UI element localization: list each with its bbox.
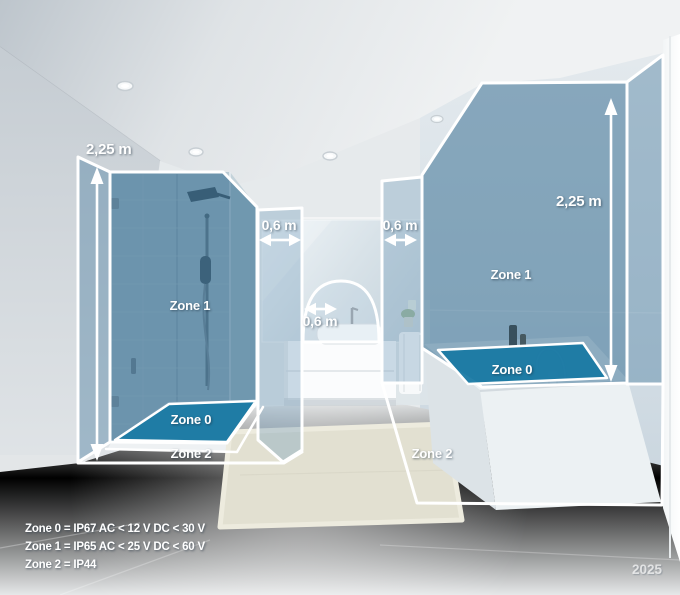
year-watermark: 2025 <box>618 562 662 577</box>
basin-arc-label: 0,6 m <box>297 314 343 329</box>
bath-zone0-label: Zone 0 <box>486 363 538 377</box>
bath-zone1-side-face <box>627 55 663 384</box>
legend-zone0-line: Zone 0 = IP67 AC < 12 V DC < 30 V <box>25 520 205 538</box>
shower-zone1-label: Zone 1 <box>164 299 216 313</box>
legend-zone1-line: Zone 1 = IP65 AC < 25 V DC < 60 V <box>25 538 205 556</box>
bathroom-zones-diagram: 2,25 m 0,6 m 0,6 m 0,6 m 2,25 m Zone 1 Z… <box>0 0 680 595</box>
shower-strip-arrow <box>268 239 292 242</box>
bath-clearance-strip <box>382 177 422 383</box>
bath-strip-label: 0,6 m <box>377 218 423 233</box>
bath-height-label: 2,25 m <box>556 194 602 211</box>
shower-height-arrow <box>96 182 99 446</box>
legend-zone2-line: Zone 2 = IP44 <box>25 556 205 574</box>
shower-zone1-side-face <box>78 157 110 462</box>
ip-rating-legend: Zone 0 = IP67 AC < 12 V DC < 30 V Zone 1… <box>25 520 205 574</box>
bath-zone1-overlay <box>422 82 627 387</box>
shower-zone2-label: Zone 2 <box>165 447 217 461</box>
shower-clearance-strip <box>258 208 302 462</box>
bath-zone2-label: Zone 2 <box>406 447 458 461</box>
shower-zone0-label: Zone 0 <box>165 413 217 427</box>
shower-strip-label: 0,6 m <box>254 218 304 233</box>
bath-height-arrow <box>610 113 613 367</box>
bathroom-scene <box>0 0 680 595</box>
bath-zone1-label: Zone 1 <box>485 268 537 282</box>
shower-height-label: 2,25 m <box>86 142 132 159</box>
bath-rug <box>220 424 462 527</box>
